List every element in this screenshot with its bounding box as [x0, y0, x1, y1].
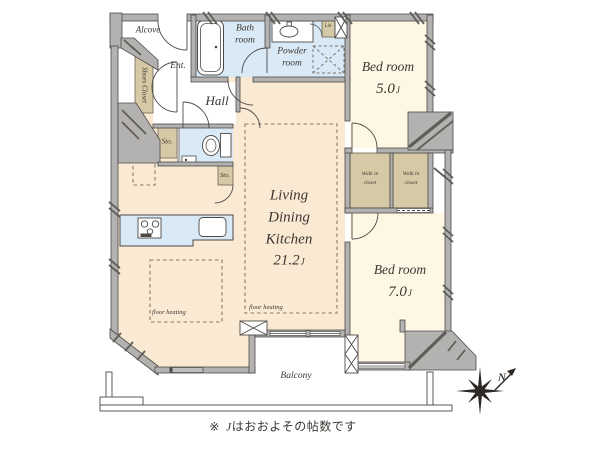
stove-icon: [138, 218, 161, 238]
compass-rose-icon: [456, 367, 516, 415]
room-label-bedroom5: Bed room: [362, 59, 414, 75]
room-label-wic1: Walk in closet: [362, 170, 378, 188]
floor-plan-page: Alcove Ent. Shoes Closet Bath room Powde…: [0, 0, 600, 450]
room-label-balcony: Balcony: [280, 371, 311, 383]
room-label-linen: Lin: [325, 24, 332, 30]
room-label-wic2: Walk in closet: [403, 170, 419, 188]
room-label-ldk: Living Dining Kitchen: [266, 186, 313, 251]
room-label-shoes-closet: Shoes Closet: [141, 67, 148, 103]
bedroom5-size-unit: J: [396, 85, 400, 96]
bathtub-icon: [198, 20, 224, 75]
bedroom7-size-unit: J: [408, 288, 412, 299]
footnote-text: はおおよその帖数です: [232, 420, 357, 434]
room-label-bath: Bath room: [235, 23, 255, 46]
footnote-symbol: ※: [209, 420, 220, 434]
kitchen-sink-icon: [199, 218, 226, 237]
room-label-alcove: Alcove: [136, 25, 160, 36]
room-label-hall: Hall: [205, 93, 228, 109]
room-size-bedroom5: 5.0J: [376, 80, 400, 98]
room-label-storage-ldk: Sto.: [220, 172, 230, 180]
ldk-size-unit: J: [301, 256, 305, 269]
balcony-notch-floor: [255, 337, 345, 400]
footnote: ※Jはおおよその帖数です: [209, 418, 356, 435]
compass-star: [456, 367, 504, 415]
ldk-size-value: 21.2: [273, 251, 299, 273]
bedroom5-size-value: 5.0: [376, 80, 395, 98]
compass-north-label: N: [498, 371, 506, 384]
room-size-ldk: 21.2J: [273, 251, 304, 273]
floor-heating-left-label: floor heating: [152, 309, 186, 317]
room-label-ldk-block: Living Dining Kitchen 21.2J: [266, 186, 313, 273]
floor-heating-center-label: floor heating: [249, 304, 283, 312]
room-label-entrance: Ent.: [170, 61, 186, 73]
room-label-bedroom7: Bed room: [374, 262, 426, 278]
bedroom7-size-value: 7.0: [388, 283, 407, 301]
room-label-storage-hall: Sto.: [162, 138, 173, 147]
room-label-powder: Powder room: [277, 46, 307, 69]
room-size-bedroom7: 7.0J: [388, 283, 412, 301]
